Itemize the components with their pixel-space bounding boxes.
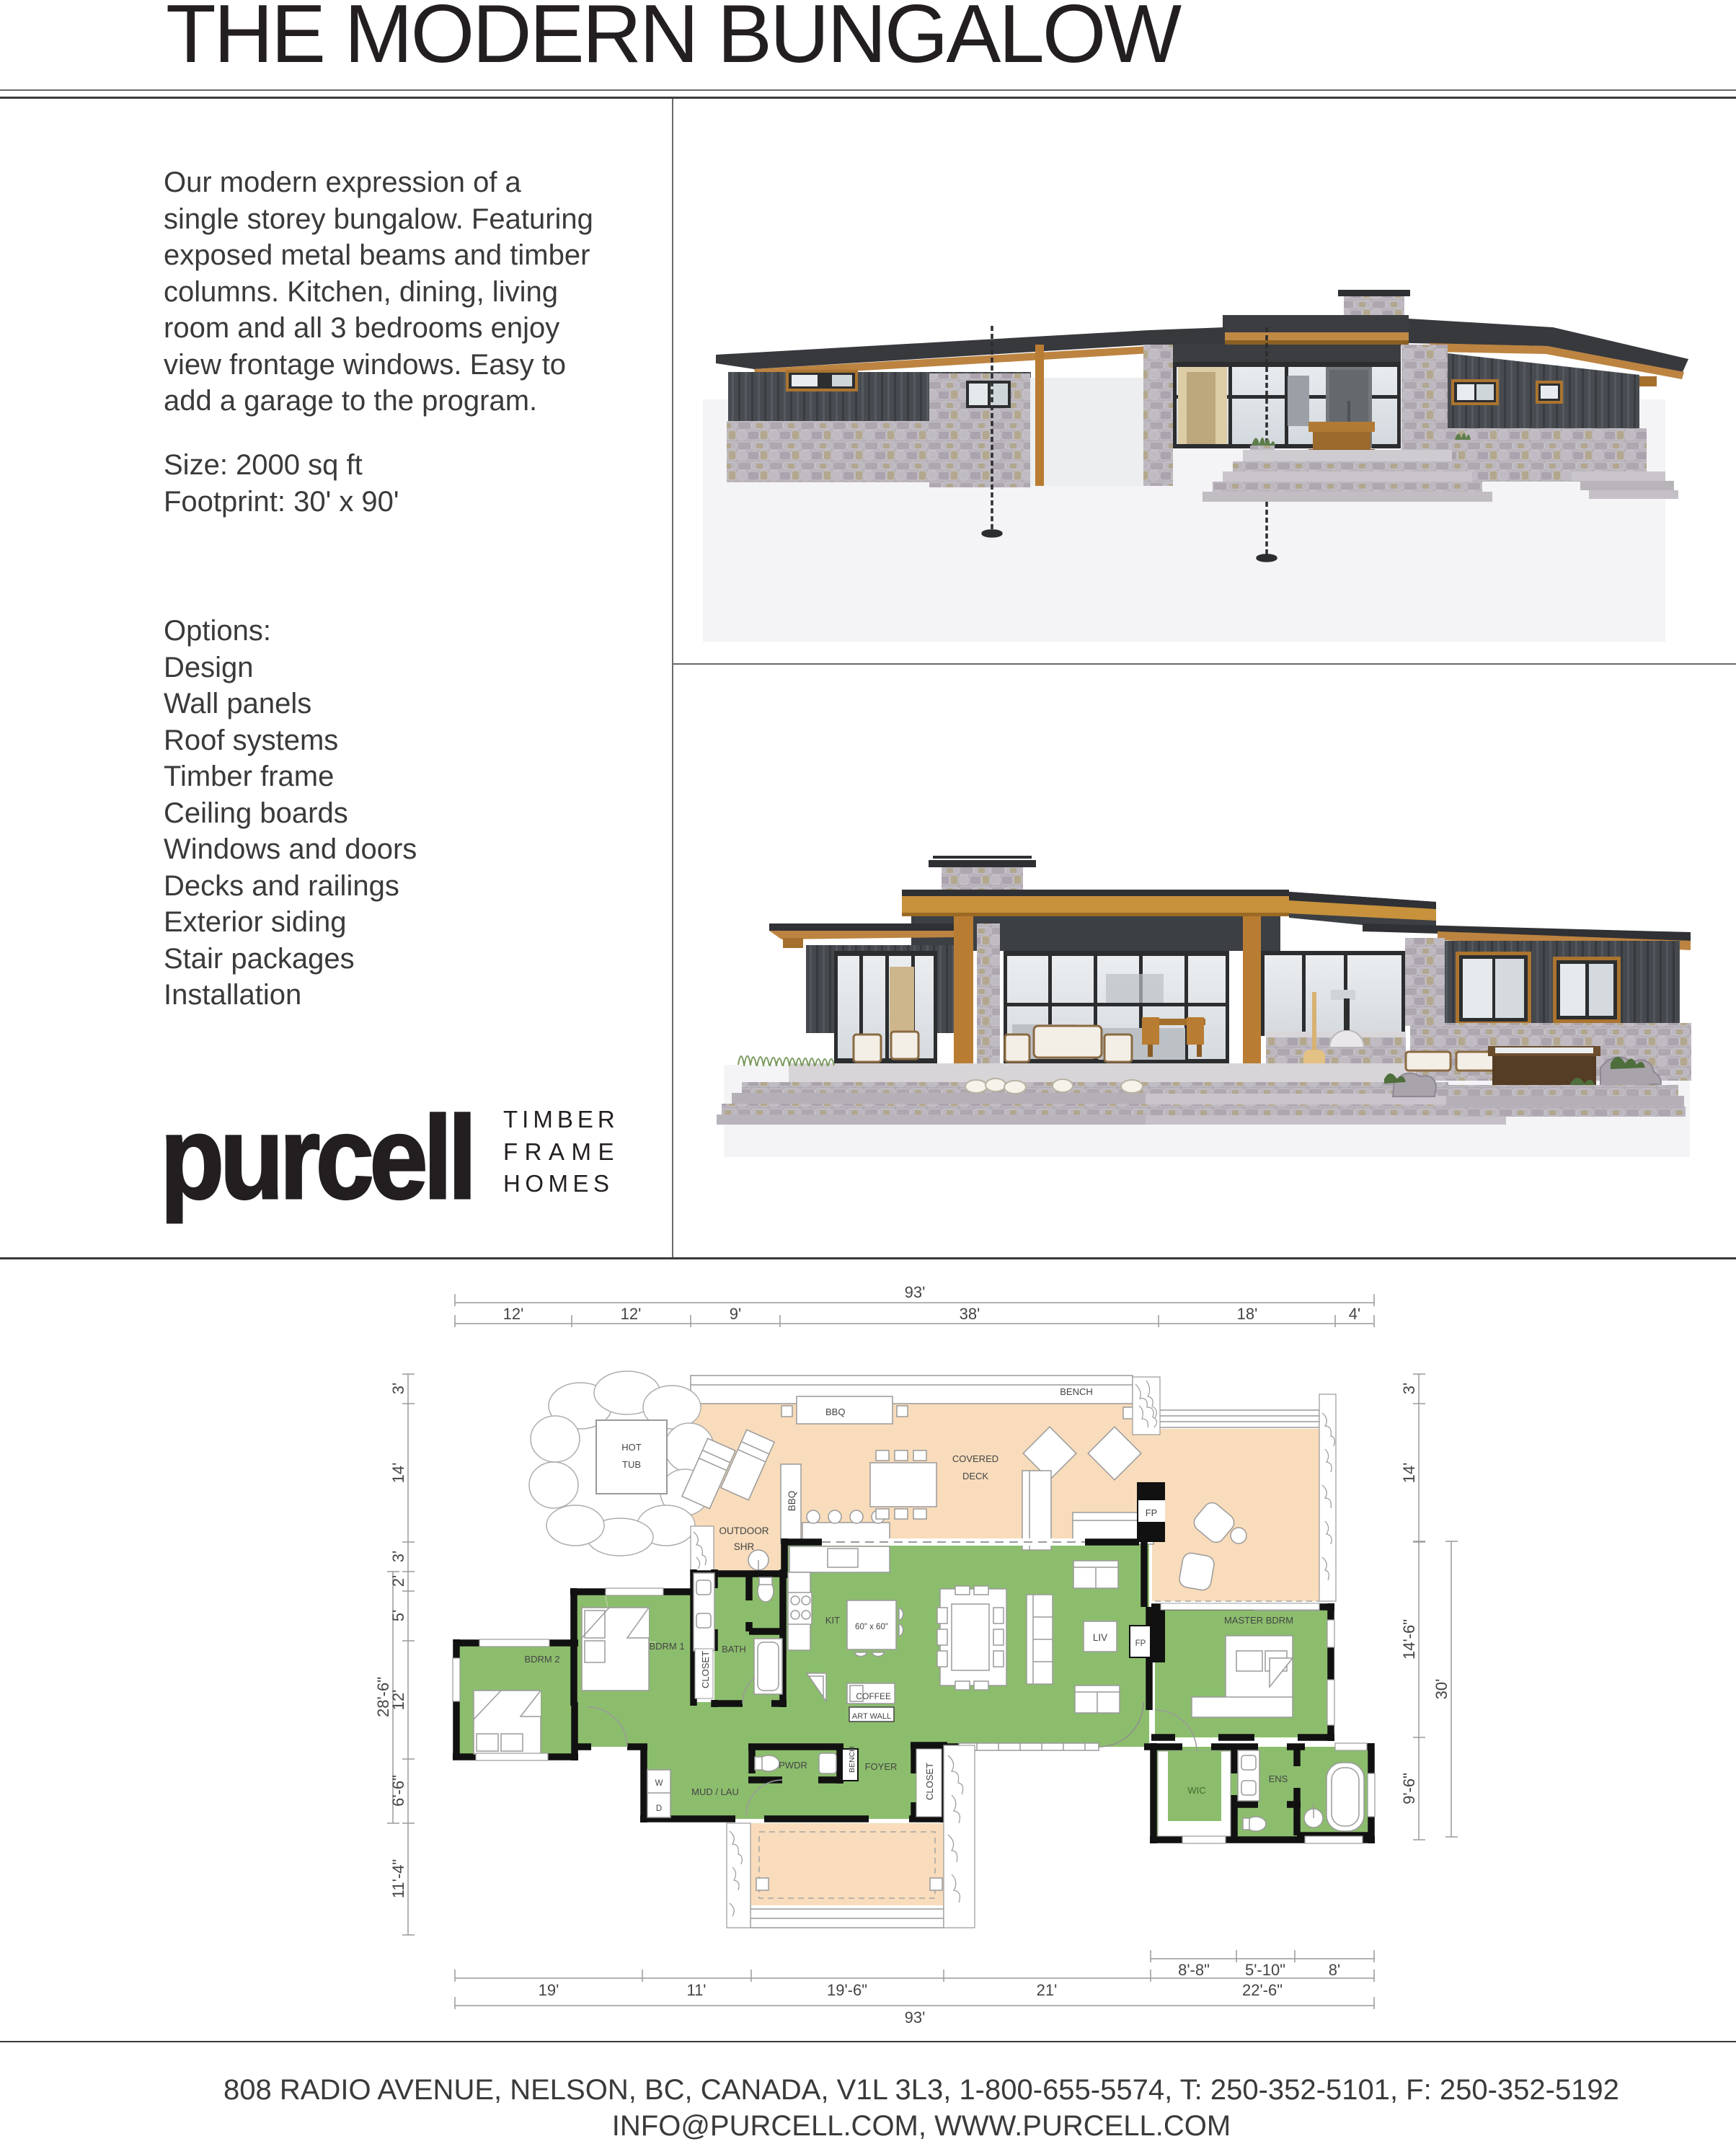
svg-text:FP: FP — [1146, 1507, 1158, 1518]
svg-text:PWDR: PWDR — [779, 1760, 807, 1771]
svg-text:SHR: SHR — [734, 1541, 755, 1552]
svg-text:DECK: DECK — [962, 1471, 988, 1481]
svg-text:9'-6": 9'-6" — [1400, 1773, 1418, 1804]
svg-text:FOYER: FOYER — [865, 1761, 898, 1772]
svg-text:19'-6": 19'-6" — [827, 1981, 867, 1999]
svg-text:KIT: KIT — [825, 1615, 840, 1626]
svg-text:ART WALL: ART WALL — [852, 1712, 891, 1721]
svg-text:FP: FP — [1135, 1639, 1146, 1648]
svg-text:22'-6": 22'-6" — [1242, 1981, 1283, 1999]
svg-text:D: D — [656, 1804, 662, 1813]
svg-text:11': 11' — [686, 1981, 706, 1999]
svg-text:3': 3' — [389, 1383, 407, 1394]
svg-text:BBQ: BBQ — [787, 1491, 797, 1512]
svg-text:BBQ: BBQ — [825, 1407, 845, 1417]
svg-text:5': 5' — [389, 1610, 407, 1621]
svg-text:OUTDOOR: OUTDOOR — [719, 1525, 769, 1536]
svg-text:12': 12' — [503, 1305, 524, 1323]
svg-text:6'-6": 6'-6" — [389, 1775, 407, 1807]
svg-text:14'-6": 14'-6" — [1400, 1619, 1418, 1660]
svg-text:LIV: LIV — [1093, 1632, 1107, 1643]
svg-text:30': 30' — [1432, 1679, 1451, 1700]
svg-text:WIC: WIC — [1187, 1785, 1205, 1796]
svg-text:19': 19' — [539, 1981, 559, 1999]
svg-text:21': 21' — [1037, 1981, 1058, 1999]
svg-text:CLOSET: CLOSET — [924, 1763, 935, 1800]
svg-text:14': 14' — [1400, 1463, 1418, 1484]
svg-text:CLOSET: CLOSET — [700, 1651, 711, 1688]
svg-text:12': 12' — [621, 1305, 642, 1323]
svg-text:38': 38' — [960, 1305, 980, 1323]
svg-text:5'-10": 5'-10" — [1245, 1961, 1285, 1979]
svg-text:BDRM 1: BDRM 1 — [649, 1641, 684, 1652]
svg-text:3': 3' — [389, 1551, 407, 1562]
svg-text:4': 4' — [1349, 1305, 1360, 1323]
svg-text:COVERED: COVERED — [952, 1453, 998, 1464]
svg-text:BENCH: BENCH — [1060, 1386, 1093, 1397]
svg-text:BATH: BATH — [722, 1644, 746, 1654]
svg-text:2': 2' — [389, 1575, 407, 1587]
svg-text:MUD / LAU: MUD / LAU — [691, 1786, 739, 1797]
svg-text:11'-4": 11'-4" — [389, 1859, 407, 1898]
svg-text:93': 93' — [905, 2008, 926, 2026]
svg-text:60" x 60": 60" x 60" — [855, 1623, 888, 1631]
svg-text:18': 18' — [1237, 1305, 1258, 1323]
svg-text:HOT: HOT — [621, 1442, 642, 1453]
svg-text:8': 8' — [1329, 1961, 1340, 1979]
svg-text:COFFEE: COFFEE — [856, 1691, 891, 1701]
svg-text:W: W — [655, 1779, 663, 1788]
svg-text:28'-6": 28'-6" — [374, 1677, 392, 1717]
svg-text:9': 9' — [730, 1305, 741, 1323]
svg-text:MASTER BDRM: MASTER BDRM — [1224, 1615, 1293, 1626]
svg-text:3': 3' — [1400, 1383, 1418, 1394]
svg-text:TUB: TUB — [622, 1459, 641, 1470]
svg-text:8'-8": 8'-8" — [1178, 1961, 1210, 1979]
svg-text:BDRM 2: BDRM 2 — [524, 1654, 559, 1665]
svg-text:93': 93' — [905, 1283, 926, 1301]
svg-text:ENS: ENS — [1269, 1773, 1288, 1784]
svg-text:14': 14' — [389, 1463, 407, 1484]
svg-text:BENCH: BENCH — [848, 1746, 856, 1773]
